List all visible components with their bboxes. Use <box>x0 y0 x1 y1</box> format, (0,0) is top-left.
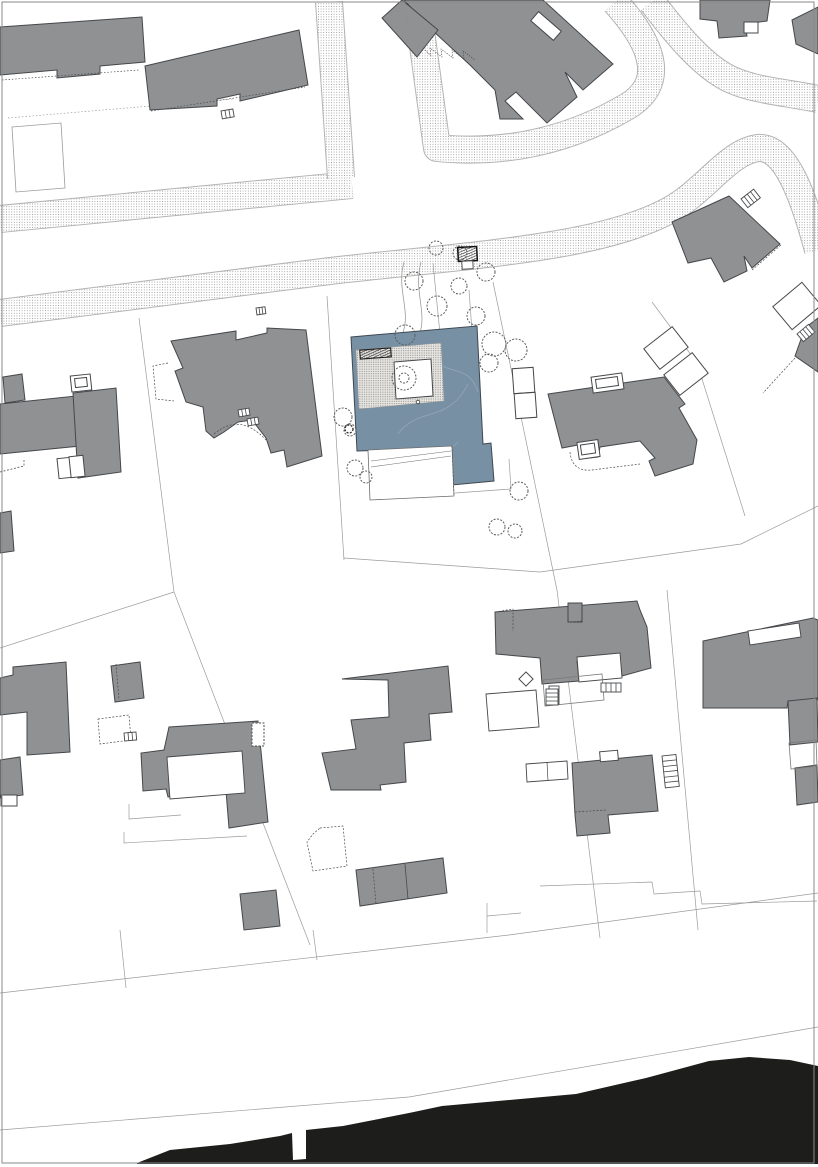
parcel-line <box>327 296 344 560</box>
sheet <box>0 0 818 1167</box>
tree <box>480 354 498 372</box>
building-top-right <box>700 0 770 38</box>
well-square <box>519 672 533 686</box>
bench-hatched <box>360 348 392 359</box>
parcel-line <box>313 930 317 960</box>
entry-steps <box>69 455 85 477</box>
parcel-line <box>139 318 174 592</box>
tree <box>505 339 527 361</box>
terrace-outline <box>1 795 17 806</box>
steps-symbol <box>247 417 259 426</box>
dashed-boundary <box>763 358 795 393</box>
street-shelter-hatched <box>458 247 478 262</box>
courtyard-inner-square <box>394 359 433 399</box>
building-bottom-left <box>0 662 70 755</box>
entry-door-circle <box>416 400 420 404</box>
building-west-irregular <box>171 328 322 467</box>
courtyard-white <box>577 653 622 682</box>
road-edge-line <box>0 893 818 993</box>
steps-symbol <box>124 732 137 741</box>
building-bottom-right-lower <box>795 765 818 805</box>
tree <box>451 278 467 294</box>
building-east-of-site <box>548 377 697 476</box>
steps-symbol <box>256 307 266 315</box>
building-white-outline <box>486 690 539 731</box>
stairs-dashed-rect <box>252 723 264 746</box>
parcel-line <box>0 592 174 648</box>
building-northwest-bar-2 <box>145 30 308 110</box>
tree <box>467 307 485 325</box>
tree <box>489 519 505 535</box>
tree-dark <box>345 425 353 433</box>
parcel-line <box>493 282 557 590</box>
parcel-line <box>344 558 540 572</box>
tree <box>508 524 522 538</box>
steps-symbol <box>238 408 250 417</box>
roof-step-square <box>568 603 582 622</box>
shore-wall-line <box>540 882 817 904</box>
building-northwest-bar-1 <box>0 17 145 78</box>
dashed-footprint <box>307 826 347 871</box>
terrace-ramp <box>368 446 454 500</box>
dashed-terrace <box>153 363 174 401</box>
building-bottom-left-stub <box>0 757 23 798</box>
tree <box>510 482 528 500</box>
sidewalk-branch-west <box>329 2 341 178</box>
garden-plot-outline <box>12 123 65 192</box>
building-west-t-bar <box>0 396 80 454</box>
parking-outline <box>514 392 537 418</box>
shelter-step <box>462 261 473 270</box>
jetty-line <box>487 913 521 916</box>
tree <box>334 408 352 426</box>
garden-wall-line <box>124 832 247 843</box>
tree <box>482 332 506 356</box>
steps-symbol <box>221 109 234 119</box>
dormer-outline <box>75 377 88 387</box>
site-plan-svg <box>0 0 818 1167</box>
building-bottom-house <box>572 755 658 836</box>
garden-wall-line <box>129 804 181 819</box>
sidewalk-main-north-west <box>0 185 352 219</box>
building-west-t-annex <box>3 374 25 403</box>
dashed-corner <box>0 459 24 472</box>
building-small-square <box>240 890 280 930</box>
parcel-line <box>540 506 818 572</box>
roof-notch <box>744 22 758 33</box>
courtyard-white <box>167 751 245 799</box>
parking-outline <box>512 367 535 393</box>
shed-small <box>111 662 144 702</box>
building-z-shape <box>322 666 452 790</box>
dormer-outline <box>600 750 619 762</box>
building-row-of-three <box>356 858 447 906</box>
entry-steps <box>580 443 595 455</box>
